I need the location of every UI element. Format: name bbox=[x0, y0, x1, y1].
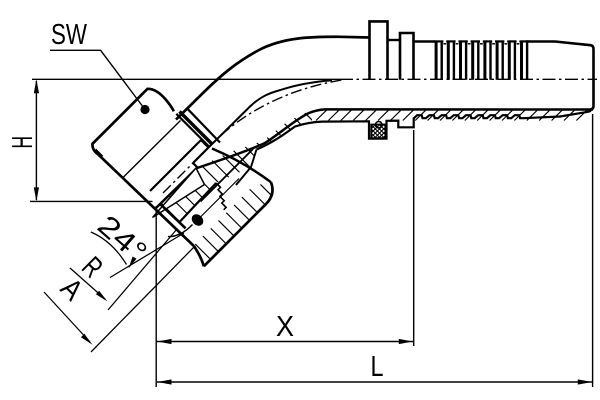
svg-text:SW: SW bbox=[51, 19, 87, 51]
svg-text:L: L bbox=[371, 351, 384, 383]
svg-text:X: X bbox=[276, 311, 294, 343]
svg-text:H: H bbox=[7, 136, 39, 149]
